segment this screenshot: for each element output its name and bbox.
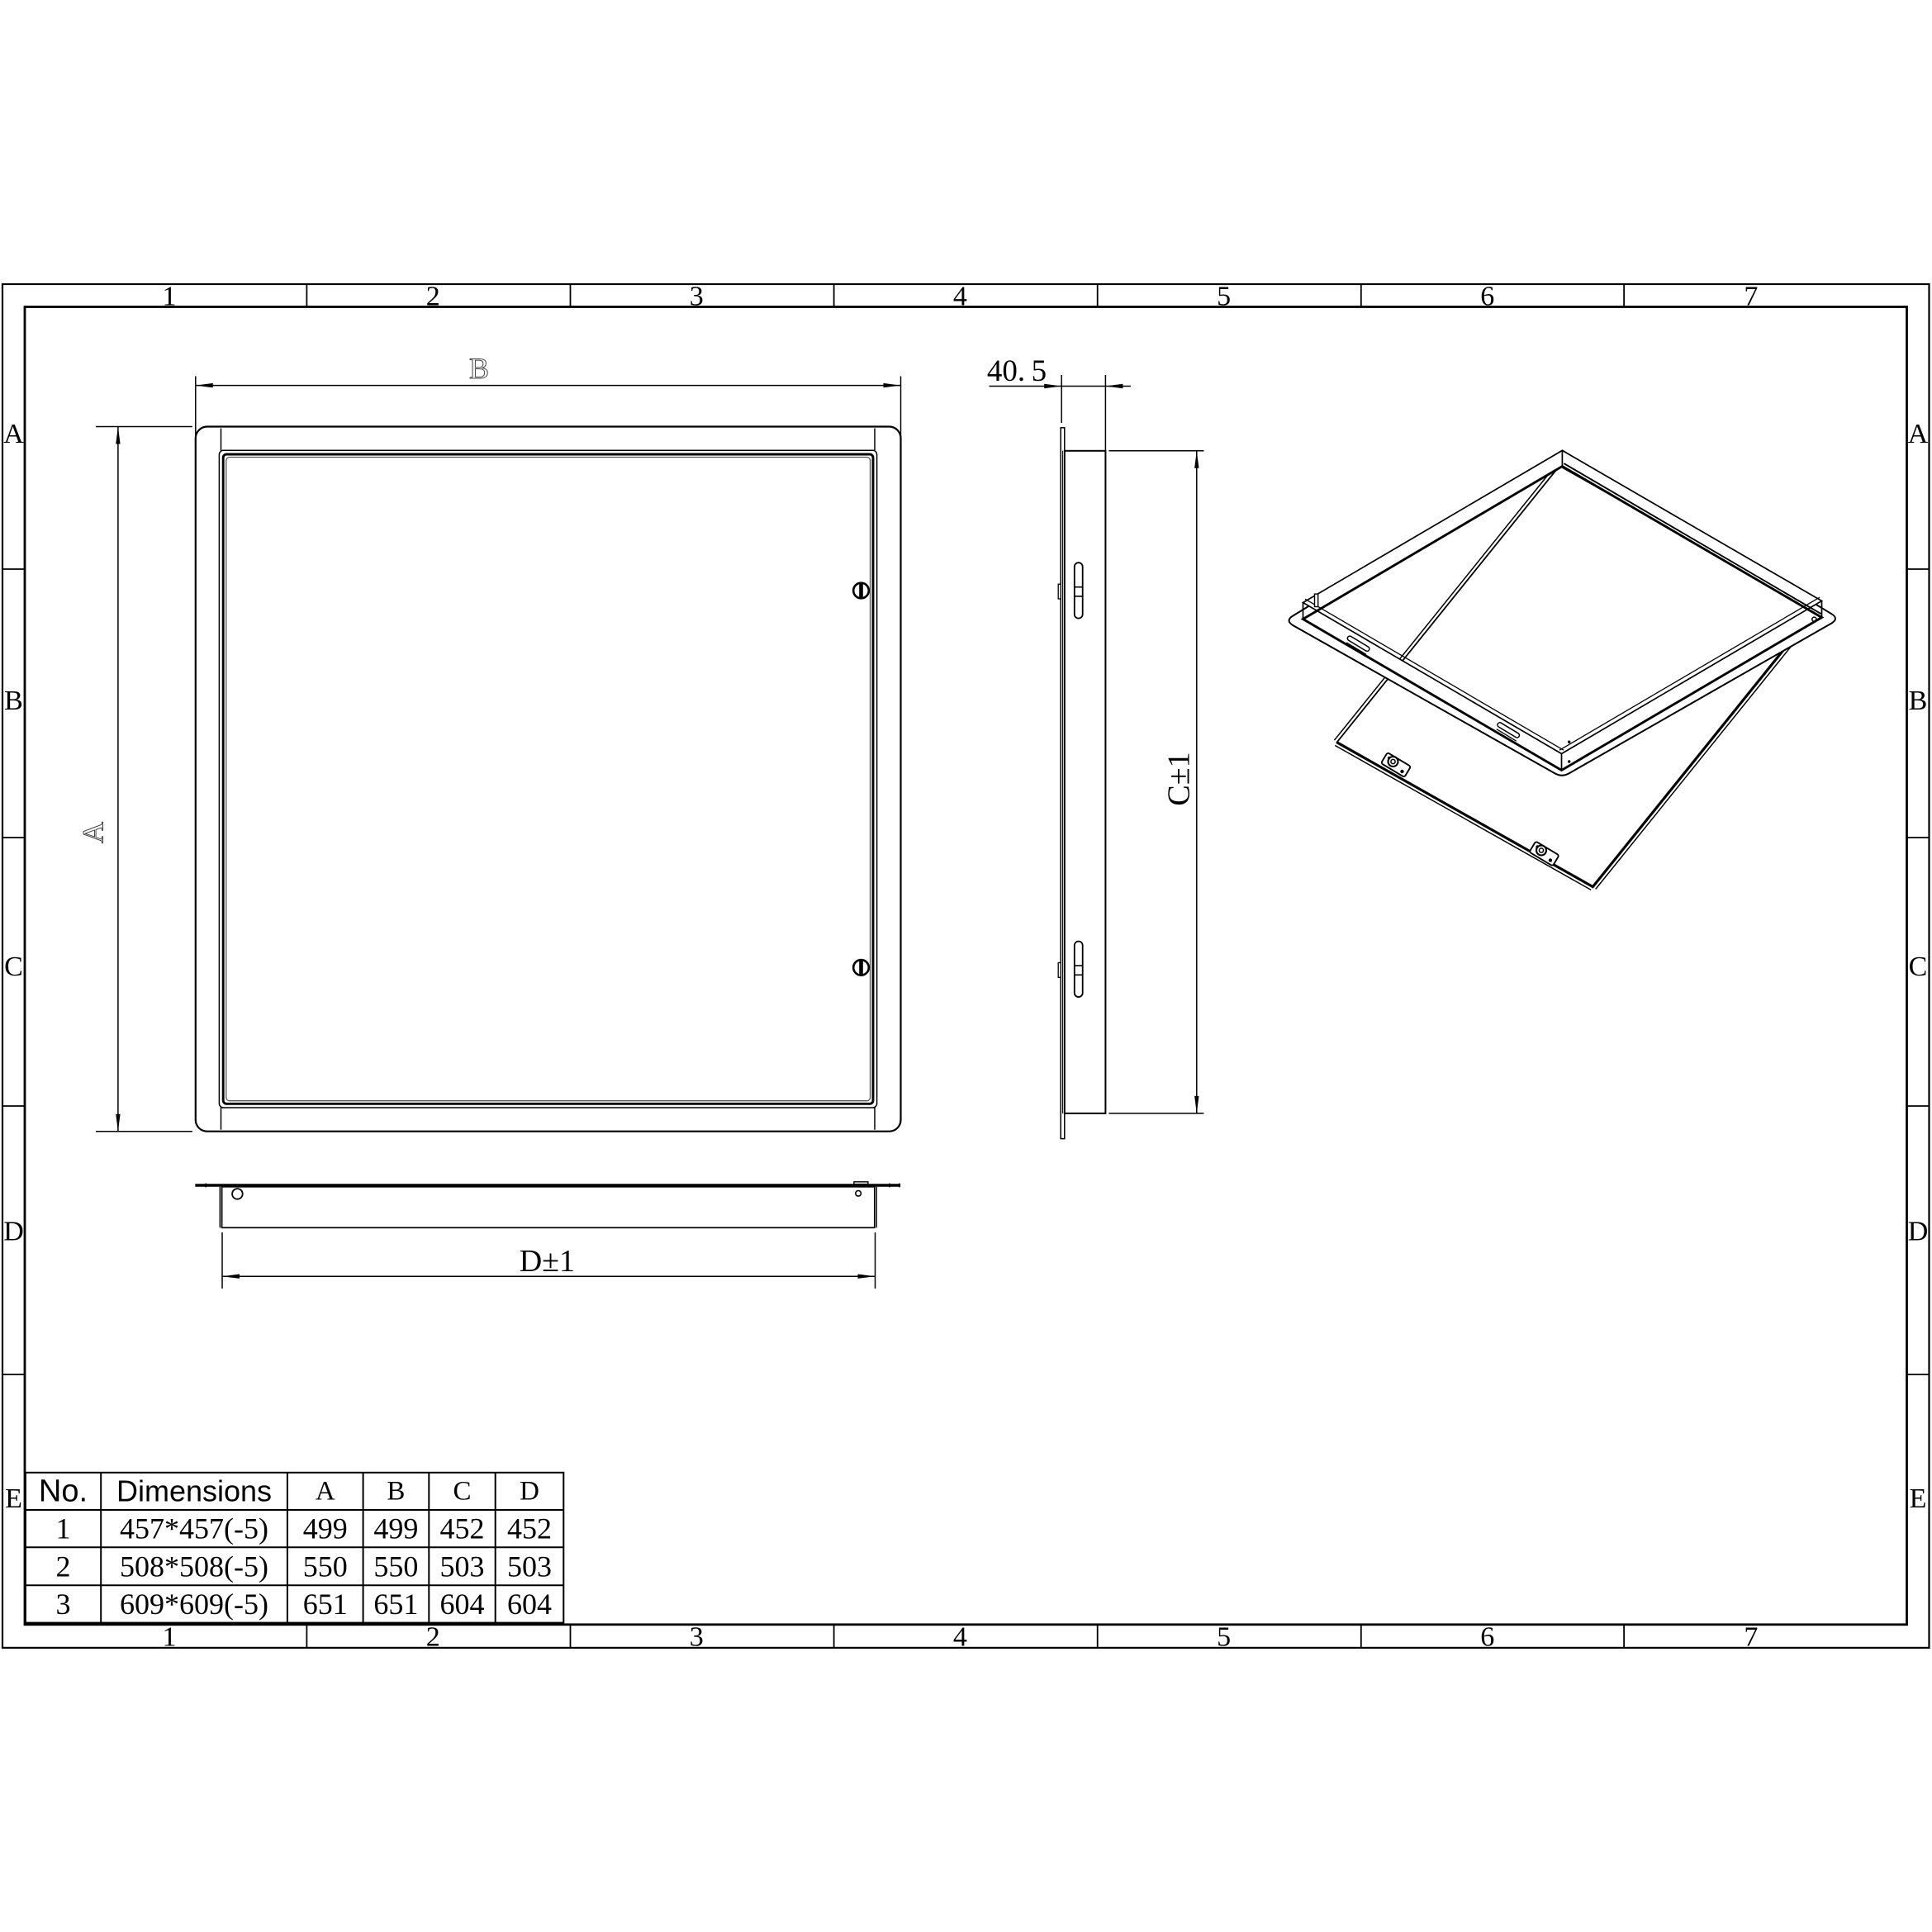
svg-text:E: E [5,1483,22,1514]
svg-text:609*609(-5): 609*609(-5) [120,1588,268,1621]
svg-text:A: A [316,1476,335,1506]
svg-text:550: 550 [303,1550,348,1583]
svg-text:503: 503 [507,1550,552,1583]
svg-text:C: C [453,1476,471,1506]
svg-text:452: 452 [507,1512,552,1545]
svg-text:3: 3 [690,282,704,312]
svg-text:499: 499 [373,1512,418,1545]
svg-text:B: B [469,352,489,385]
svg-text:C: C [1909,952,1928,982]
svg-text:5: 5 [1217,1622,1231,1653]
svg-text:6: 6 [1480,282,1494,312]
svg-text:C: C [4,952,23,982]
svg-text:A: A [77,822,110,843]
svg-text:452: 452 [440,1512,485,1545]
svg-text:1: 1 [163,282,177,312]
svg-text:3: 3 [690,1622,704,1653]
svg-text:2: 2 [426,282,440,312]
svg-text:7: 7 [1744,282,1758,312]
svg-text:B: B [1909,686,1928,716]
svg-text:651: 651 [373,1588,418,1621]
svg-text:B: B [387,1476,405,1506]
svg-text:Dimensions: Dimensions [116,1474,272,1507]
svg-text:3: 3 [56,1588,71,1621]
svg-text:A: A [3,419,24,449]
svg-text:No.: No. [39,1474,88,1508]
svg-text:7: 7 [1744,1622,1758,1653]
svg-text:508*508(-5): 508*508(-5) [120,1550,268,1583]
svg-text:499: 499 [303,1512,348,1545]
svg-text:4: 4 [953,1622,967,1653]
svg-text:6: 6 [1480,1622,1494,1653]
svg-text:604: 604 [440,1588,485,1621]
svg-text:D: D [1908,1217,1929,1247]
svg-text:2: 2 [56,1550,71,1583]
svg-text:1: 1 [163,1622,177,1653]
svg-text:D±1: D±1 [520,1244,575,1279]
svg-text:40. 5: 40. 5 [987,354,1047,388]
svg-text:5: 5 [1217,282,1231,312]
svg-text:2: 2 [426,1622,440,1653]
svg-text:C±1: C±1 [1162,752,1197,805]
svg-text:1: 1 [56,1512,71,1545]
svg-text:651: 651 [303,1588,348,1621]
svg-text:503: 503 [440,1550,485,1583]
svg-text:550: 550 [373,1550,418,1583]
svg-text:604: 604 [507,1588,552,1621]
svg-text:4: 4 [953,282,967,312]
svg-text:457*457(-5): 457*457(-5) [120,1512,268,1545]
svg-text:A: A [1908,419,1929,449]
svg-text:E: E [1910,1483,1927,1514]
svg-text:D: D [520,1476,539,1506]
svg-text:D: D [3,1217,24,1247]
svg-text:B: B [4,686,23,716]
